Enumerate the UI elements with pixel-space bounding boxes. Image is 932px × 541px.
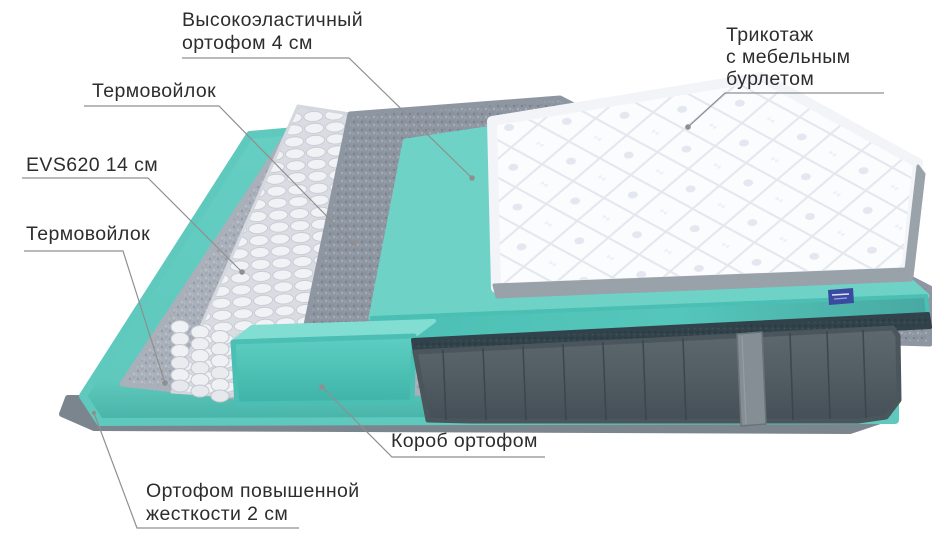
mattress-infographic: Высокоэластичный ортофом 4 см Термовойло… — [0, 0, 932, 541]
label-elastic-foam: Высокоэластичный ортофом 4 см — [182, 9, 363, 55]
brand-tag — [828, 288, 854, 305]
label-thermo-felt-top: Термовойлок — [92, 80, 216, 103]
foam-box-front — [233, 336, 414, 404]
leader-dot-elastic-foam — [469, 175, 475, 181]
label-firm-foam: Ортофом повышенной жесткости 2 см — [146, 480, 360, 526]
handle-strap — [737, 332, 766, 426]
leader-dot-thermo-felt-bottom — [162, 380, 168, 386]
pocket-springs-front-row — [171, 321, 229, 403]
label-foam-box: Короб ортофом — [391, 430, 538, 453]
leader-dot-spring-block — [239, 269, 245, 275]
leader-dot-thermo-felt-top — [350, 240, 356, 246]
leader-dot-firm-foam — [92, 411, 96, 415]
leader-dot-foam-box — [319, 384, 325, 390]
leader-dot-knit-cover — [685, 124, 691, 130]
label-thermo-felt-bottom: Термовойлок — [26, 223, 150, 246]
label-knit-cover: Трикотаж с мебельным бурлетом — [726, 24, 850, 90]
label-spring-block: EVS620 14 см — [26, 154, 158, 177]
knit-cover-pad — [492, 77, 918, 288]
